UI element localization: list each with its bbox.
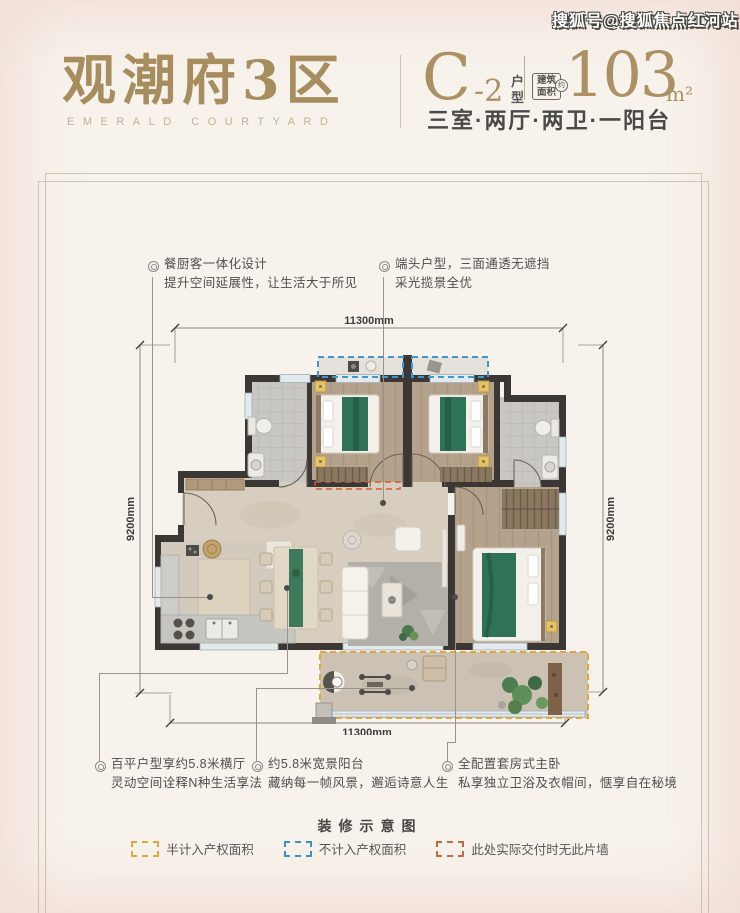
legend-item-half-counted: 半计入产权面积 [131, 839, 254, 858]
leader-segment [99, 673, 100, 761]
legend-label: 此处实际交付时无此片墙 [471, 839, 609, 858]
callout-marker-icon [252, 761, 263, 772]
legend-label: 不计入产权面积 [319, 839, 407, 858]
leader-segment [383, 277, 384, 503]
page-title: 观潮府3区 [62, 50, 346, 110]
callout-desc: 灵动空间诠释N种生活享法 [111, 774, 262, 793]
leader-segment [256, 688, 257, 761]
layout-spec: 三室·两厅·两卫·一阳台 [403, 103, 695, 135]
callout-marker-icon [379, 261, 390, 272]
unit-letter: C [422, 46, 471, 110]
page-subtitle: EMERALD COURTYARD [67, 116, 336, 128]
callout-desc: 藏纳每一帧风景，邂逅诗意人生 [268, 774, 449, 793]
equipment-platform-left-floor [318, 357, 403, 377]
leader-dot [284, 585, 290, 591]
leader-dot [409, 685, 415, 691]
callout-marker-icon [148, 261, 159, 272]
dim-right-label: 9200mm [605, 497, 617, 541]
balcony-floor [320, 652, 588, 718]
dimension-top: 11300mm [171, 315, 567, 363]
equipment-platform-right-floor [412, 357, 488, 377]
dimension-right: 9200mm [578, 341, 617, 696]
leader-segment [152, 597, 210, 598]
foyer-furniture [186, 479, 244, 490]
leader-segment [152, 277, 153, 597]
area-value: 103 [565, 44, 677, 106]
legend-item-no-wall: 此处实际交付时无此片墙 [436, 839, 609, 858]
header-divider [400, 55, 401, 128]
leader-segment [287, 588, 288, 673]
header-divider-small [524, 56, 525, 100]
callout-title: 全配置套房式主卧 [458, 755, 561, 774]
callout-title: 端头户型，三面通透无遮挡 [395, 255, 550, 274]
floor-plan: 11300mm 11300mm 9200mm 9200mm [90, 315, 650, 735]
callout-marker-icon [442, 761, 453, 772]
dim-left-label: 9200mm [125, 497, 137, 541]
leader-dot [207, 594, 213, 600]
legend-title: 装修示意图 [0, 816, 740, 836]
legend-swatch-no-wall [436, 841, 464, 857]
callout-desc: 私享独立卫浴及衣帽间，惬享自在秘境 [458, 774, 677, 793]
floorplan-poster: 观潮府3区 EMERALD COURTYARD C -2 户型 建筑面积 约 1… [0, 0, 740, 913]
dim-bottom-label: 11300mm [342, 727, 392, 735]
legend: 半计入产权面积 不计入产权面积 此处实际交付时无此片墙 [0, 839, 740, 858]
legend-label: 半计入产权面积 [166, 839, 254, 858]
callout-desc: 采光揽景全优 [395, 274, 472, 293]
callout-title: 餐厨客一体化设计 [164, 255, 267, 274]
callout-desc: 提升空间延展性，让生活大于所见 [164, 274, 358, 293]
leader-dot [380, 500, 386, 506]
leader-dot [452, 594, 458, 600]
leader-segment [447, 742, 456, 743]
watermark: 搜狐号@搜狐焦点红河站 [552, 7, 739, 31]
callout-title: 百平户型享约5.8米横厅 [111, 755, 246, 774]
leader-segment [256, 688, 412, 689]
callout-title: 约5.8米宽景阳台 [268, 755, 364, 774]
legend-item-not-counted: 不计入产权面积 [284, 839, 407, 858]
callout-marker-icon [95, 761, 106, 772]
dim-top-label: 11300mm [344, 315, 394, 327]
leader-segment [455, 597, 456, 742]
leader-segment [99, 673, 288, 674]
legend-swatch-half-counted [131, 841, 159, 857]
leader-segment [447, 742, 448, 762]
legend-swatch-not-counted [284, 841, 312, 857]
